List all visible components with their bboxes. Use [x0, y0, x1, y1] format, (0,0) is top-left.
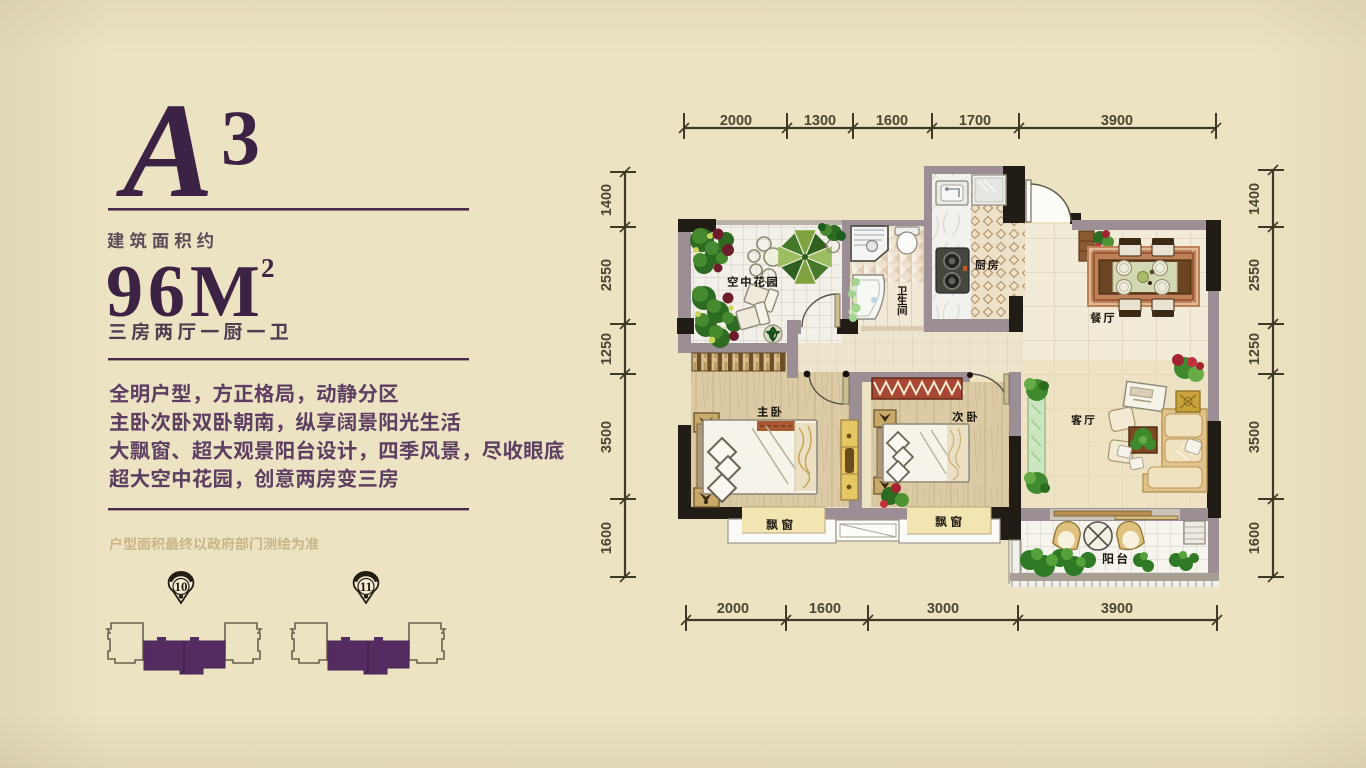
svg-text:A: A — [115, 76, 214, 226]
svg-text:2550: 2550 — [1247, 259, 1263, 291]
svg-text:1250: 1250 — [599, 333, 615, 365]
svg-text:1600: 1600 — [809, 601, 841, 617]
svg-text:3500: 3500 — [599, 421, 615, 453]
svg-text:3500: 3500 — [1247, 421, 1263, 453]
svg-text:1700: 1700 — [959, 113, 991, 129]
svg-text:3000: 3000 — [927, 601, 959, 617]
svg-text:3: 3 — [221, 94, 260, 181]
svg-text:1600: 1600 — [876, 113, 908, 129]
svg-text:11: 11 — [360, 579, 372, 594]
svg-text:1400: 1400 — [1247, 183, 1263, 215]
svg-text:1400: 1400 — [599, 184, 615, 216]
svg-text:2000: 2000 — [717, 601, 749, 617]
svg-text:2000: 2000 — [720, 113, 752, 129]
svg-text:1600: 1600 — [1247, 522, 1263, 554]
svg-text:2550: 2550 — [599, 259, 615, 291]
svg-text:1600: 1600 — [599, 522, 615, 554]
svg-text:1300: 1300 — [804, 113, 836, 129]
svg-text:2: 2 — [261, 253, 275, 283]
svg-text:1250: 1250 — [1247, 333, 1263, 365]
svg-text:10: 10 — [175, 579, 188, 594]
svg-text:3900: 3900 — [1101, 601, 1133, 617]
svg-text:3900: 3900 — [1101, 113, 1133, 129]
svg-text:96M: 96M — [106, 251, 265, 333]
